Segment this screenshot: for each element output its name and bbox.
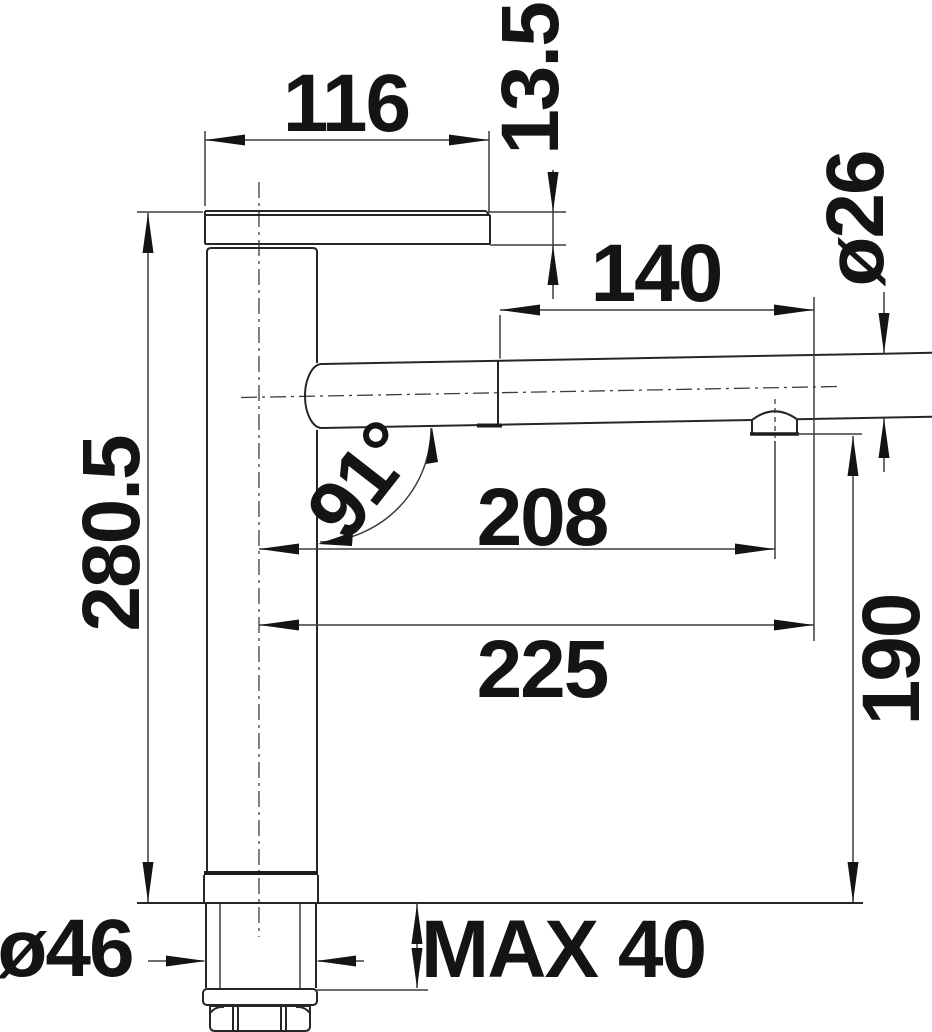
hex-nut-outline [210, 1006, 310, 1031]
arrowhead [166, 956, 206, 967]
arrowhead [316, 956, 356, 967]
dim-label-total-height: 280.5 [66, 436, 157, 632]
dim-label-spout-angle: 91° [289, 406, 433, 555]
arrowhead [449, 135, 489, 146]
spout-bottom-line-front [797, 417, 932, 420]
spout-axis-centerline [241, 387, 838, 398]
faucet-technical-drawing-page: 116 13.5 140 ø26 280.5 91° 208 225 190 ø… [0, 0, 932, 1032]
faucet-body [204, 248, 318, 902]
dim-wand-length [500, 297, 814, 641]
arrowhead [205, 135, 245, 146]
arrowhead [548, 172, 559, 212]
dim-label-lever-plate-thickness: 13.5 [485, 3, 576, 155]
arrowhead [259, 544, 299, 555]
mounting-hardware [203, 989, 317, 1031]
washer [203, 989, 317, 1005]
dim-base-diameter [148, 956, 364, 967]
dim-spout-diameter [879, 292, 890, 472]
arrowhead [259, 620, 299, 631]
faucet-technical-drawing: 116 13.5 140 ø26 280.5 91° 208 225 190 ø… [0, 0, 932, 1032]
dim-label-outlet-height: 190 [846, 595, 932, 726]
arrowhead [548, 245, 559, 285]
spout [305, 353, 932, 434]
dim-label-lever-width: 116 [283, 58, 409, 149]
lever-plate [205, 211, 490, 244]
arrowhead [500, 305, 540, 316]
arrowhead [848, 436, 859, 476]
spout-top-line [322, 353, 932, 364]
arrowhead [774, 305, 814, 316]
dim-label-base-diameter: ø46 [0, 903, 133, 994]
dim-max-mounting-thickness [317, 903, 428, 990]
arrowhead [774, 620, 814, 631]
arrowhead [879, 313, 890, 354]
arrowhead [143, 213, 154, 253]
dimension-labels: 116 13.5 140 ø26 280.5 91° 208 225 190 ø… [0, 3, 932, 995]
spout-bottom-line-mid [499, 420, 752, 425]
arrowhead [879, 418, 890, 458]
arrowhead [735, 544, 775, 555]
arrowhead [848, 862, 859, 902]
hex-nut-chamfer-left [210, 1007, 224, 1013]
dim-label-aerator-offset: 208 [477, 472, 608, 563]
dim-label-spout-diameter: ø26 [810, 151, 901, 286]
hex-nut-chamfer-right [296, 1007, 310, 1013]
dim-label-spout-reach: 225 [477, 624, 608, 715]
dim-label-wand-length: 140 [591, 228, 722, 319]
arrowhead [143, 862, 154, 902]
dim-label-max-mounting-thickness: MAX 40 [421, 904, 705, 995]
body-left-and-top [207, 248, 317, 873]
dim-lever-plate-thickness [486, 170, 566, 299]
threaded-shank [206, 904, 316, 988]
